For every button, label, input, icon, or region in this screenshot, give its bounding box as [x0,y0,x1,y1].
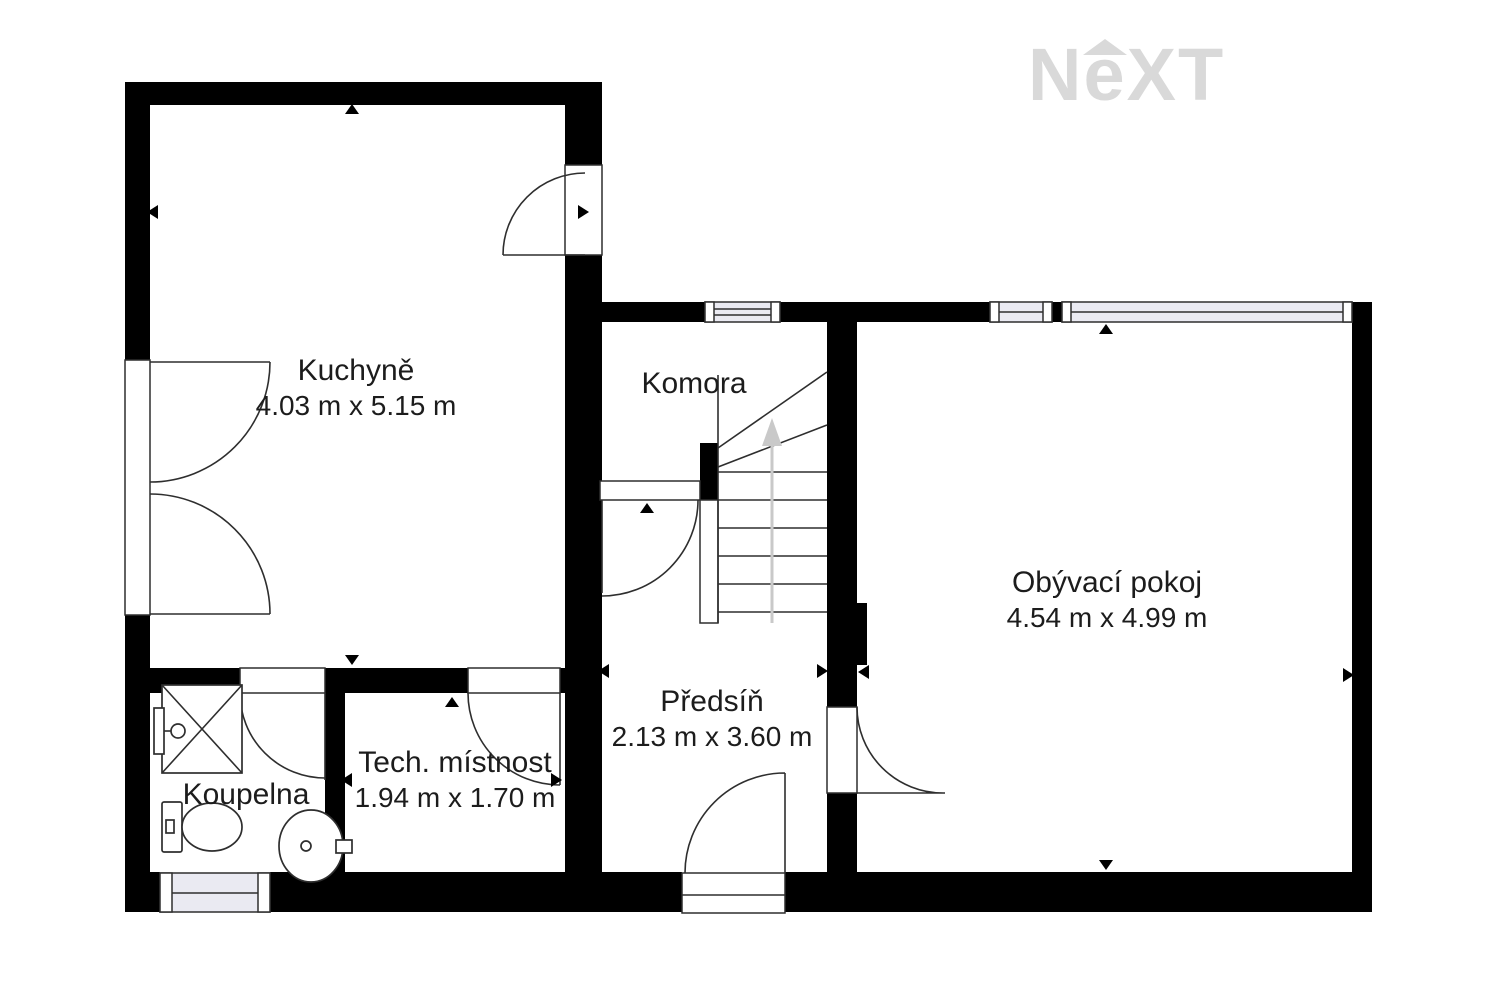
next-logo: N e X T [1028,38,1225,112]
wall-right [1352,302,1372,912]
shower-head-icon [171,724,185,738]
staircase [718,372,827,623]
wall-chimney-bulge [853,603,867,665]
marker-tech-door [445,697,459,707]
komora-door [602,500,698,596]
room-name-tech-mistnost: Tech. místnost [355,745,556,781]
wall-stair-stub [700,443,718,500]
room-dims-tech-mistnost: 1.94 m x 1.70 m [355,781,556,815]
opening-tech-door [468,668,560,693]
room-name-kuchyne: Kuchyně [256,353,457,389]
walls [125,82,1372,912]
wall-bottom-seg2 [270,872,682,912]
room-label-kuchyne: Kuchyně 4.03 m x 5.15 m [256,353,457,423]
logo-letter-e-wrap: e [1083,38,1126,112]
room-name-obyvaci-pokoj: Obývací pokoj [1007,565,1208,601]
living-window-large-cap-left [1062,302,1071,322]
marker-kitchen-top [345,104,359,114]
marker-chimney-left [817,664,828,678]
logo-letter-t: T [1178,38,1225,112]
komora-window [705,302,780,322]
entrance-threshold [682,873,785,913]
living-window-small-cap-left [990,302,999,322]
stair-stringer-wall [700,500,718,623]
wall-living-left-lower [827,793,857,872]
room-dims-obyvaci-pokoj: 4.54 m x 4.99 m [1007,601,1208,635]
floor-plan: N e X T Kuchyně 4.03 m x 5.15 m Komora O… [0,0,1500,1000]
basin-drain [301,841,311,851]
komora-window-cap-left [705,302,714,322]
shower-rail [154,708,164,754]
floor-plan-drawing [0,0,1500,1000]
living-room-door [857,707,945,793]
basin-tap [336,840,352,853]
opening-komora-door [600,481,700,500]
marker-living-top [1099,324,1113,334]
wall-living-left-upper [827,302,857,707]
marker-living-bottom [1099,860,1113,870]
bathroom-window-cap-right [258,873,270,912]
living-window-small-cap-right [1043,302,1052,322]
wall-left-upper [125,82,150,360]
wall-kitchen-bottom-seg2 [325,668,468,693]
room-name-predsin: Předsíň [612,684,813,720]
marker-komora-door [640,503,654,513]
room-name-koupelna: Koupelna [183,777,310,813]
kitchen-balcony-door-top [150,362,270,482]
living-window-large-cap-right [1343,302,1352,322]
bathroom-door [240,693,325,780]
wall-kitchen-right-upper [565,82,602,165]
toilet-flush-button [166,820,174,833]
wall-window-mullion [1052,302,1062,322]
wall-kitchen-top [125,82,602,105]
logo-letter-x: X [1127,38,1178,112]
room-label-predsin: Předsíň 2.13 m x 3.60 m [612,684,813,754]
room-name-komora: Komora [641,366,746,402]
marker-chimney-right [858,665,869,679]
opening-living-door [827,707,857,793]
bathroom-window-cap-left [160,873,172,912]
opening-bathroom-door [240,668,325,693]
room-dims-predsin: 2.13 m x 3.60 m [612,720,813,754]
wall-komora-top-seg2 [780,302,827,322]
room-dims-kuchyne: 4.03 m x 5.15 m [256,389,457,423]
wall-kitchen-bottom-seg3 [560,668,602,693]
stairs-up-arrow-icon [762,418,782,446]
opening-kitchen-left-doors [125,360,150,615]
room-label-obyvaci-pokoj: Obývací pokoj 4.54 m x 4.99 m [1007,565,1208,635]
entrance-door [685,773,785,873]
logo-letter-n: N [1028,38,1083,112]
room-label-tech-mistnost: Tech. místnost 1.94 m x 1.70 m [355,745,556,815]
wall-bottom-seg1 [125,872,160,912]
logo-roof-icon [1083,39,1127,55]
komora-window-cap-right [771,302,780,322]
room-label-komora: Komora [641,366,746,402]
wall-left-lower [125,615,150,912]
wall-bottom-seg3 [785,872,1372,912]
wall-kitchen-right-lower [565,255,602,872]
room-label-koupelna: Koupelna [183,777,310,813]
marker-kitchen-bottom [345,655,359,665]
kitchen-balcony-door-bottom [150,494,270,614]
